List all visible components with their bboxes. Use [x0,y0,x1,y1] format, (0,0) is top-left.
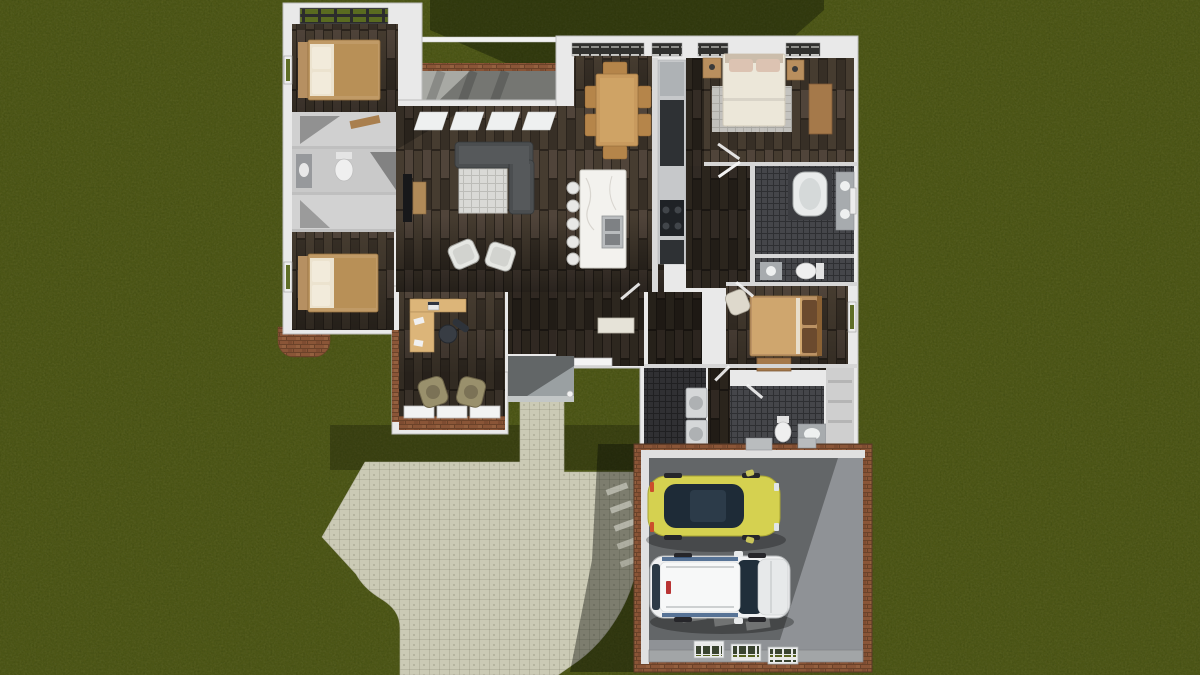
white-suv-hood [758,559,788,615]
left-wall-3 [292,229,398,232]
master-lamp-left [709,64,715,70]
white-suv-roofrail-1 [666,566,734,568]
white-suv-mirror-1 [734,551,743,557]
porch-post [567,391,573,397]
white-suv-mirror-2 [734,618,743,624]
left-bath-toilet-tank [336,152,352,159]
closet-shade [688,166,750,288]
hall2-shade [708,368,730,454]
dining-chair-right-1 [638,86,651,108]
washer-door [689,396,703,410]
garage-door-panes-2 [733,646,759,659]
bedroom1-window-pane [286,59,290,81]
bedroom2-window-pane [286,265,290,289]
bed1-pillow-2 [312,72,331,94]
master-pillow-right [756,59,780,72]
white-suv-wheel-4 [748,617,766,622]
garage-wall-left [641,450,649,664]
master-sink-1 [840,181,850,191]
dining-chair-right-2 [638,114,651,136]
garage-wall-top [641,450,865,458]
bed3-pillow-1 [802,300,817,325]
master-bed-foldline [723,98,785,101]
left-wall-1 [292,146,398,149]
bed1-pillow-1 [312,47,331,69]
stove-burner-2 [675,207,682,214]
den-armchair-2-seat [464,385,478,399]
wc-toilet-tank [816,263,824,279]
bed1-headboard [298,42,308,98]
bar-stool-5 [567,253,579,265]
white-suv-window-bottom [662,613,738,617]
living-north-sill-3 [486,112,520,130]
front-door [574,358,612,366]
kitchen-stove [660,200,684,236]
island-sink-basin-1 [605,219,620,231]
left-bath-toilet [335,159,353,181]
courtyard-rail-top [398,37,570,42]
bar-stool-3 [567,218,579,230]
desk-laptop-screen [428,302,439,305]
white-suv-roof [660,562,740,612]
kitchen-wall [652,58,658,310]
wc-wall [755,254,854,258]
bar-stool-4 [567,236,579,248]
left-wall-2 [292,192,398,195]
bay-window-3 [470,406,500,418]
bar-stool-2 [567,200,579,212]
wc-sink [766,266,776,276]
courtyard-brick-edge [404,63,564,71]
floorplan-render [0,0,1200,675]
white-suv-rear-glass [652,564,660,610]
linen-shelf-3 [828,420,852,423]
living-north-sill-2 [450,112,484,130]
yellow-car-headlight-2 [774,523,779,531]
bedroom3-wall-north [726,282,858,286]
porch-step [508,396,574,402]
master-lamp-right [792,66,798,72]
garage-door-panes-1 [696,643,722,656]
sofa-cushions-top [459,146,529,164]
yellow-car-roof [690,490,726,522]
yellow-car-taillight-1 [650,482,654,492]
sofa-cushions-right [513,164,530,210]
stove-burner-3 [663,223,670,230]
bed3-mattress [752,298,802,354]
mudhall-shade [508,292,556,354]
clerestory-window-4 [786,43,820,56]
bath2-toilet [775,422,791,442]
white-suv-taillight [666,581,671,594]
bath-wall-west [750,164,755,288]
linen-shelf-1 [828,380,852,383]
white-suv-wheel-3 [748,553,766,558]
yellow-car-taillight-2 [650,522,654,532]
bed1-blanket [334,44,378,96]
garage-door-panes-3 [770,649,796,662]
entry-bench [598,318,634,333]
island-sink-basin-2 [605,234,620,245]
dryer-door [689,427,703,441]
dining-table-top [600,78,634,142]
white-suv-hood-line [770,561,772,613]
bed2-pillow-1 [312,261,330,282]
yellow-car-wheel-1 [664,473,682,478]
bar-stool-1 [567,182,579,194]
clerestory-window-2 [652,43,682,56]
master-sink-2 [840,209,850,219]
clerestory-window-1 [572,43,644,56]
kitchen-fridge [660,62,684,96]
stove-burner-1 [663,207,670,214]
wc-toilet [796,263,816,279]
master-dresser [809,84,832,134]
utility-box-2 [798,438,816,448]
white-suv-wheel-2 [674,617,692,622]
left-bath-sink [299,163,309,177]
bedroom1-skylight-band [300,8,388,24]
dining-chair-bottom [603,146,627,159]
media-console [413,182,426,214]
bed3-sheetline [796,298,800,354]
bed3-pillow-2 [802,328,817,353]
yellow-car-headlight-1 [774,483,779,491]
living-north-sill-4 [522,112,556,130]
white-suv-roofrail-2 [666,606,734,608]
yellow-car-wheel-2 [664,535,682,540]
scene-svg [0,0,1200,675]
tv-panel [403,174,412,222]
bathtub-basin [799,178,821,210]
stove-burner-4 [675,223,682,230]
bath-window-east [850,188,856,214]
bay-window-2 [437,406,467,418]
white-suv-window-top [662,557,738,561]
area-rug [459,169,507,213]
office-chair [439,325,457,343]
hall3-shade [648,292,702,364]
south-strip-wall [644,364,858,368]
bedroom3-window-pane [850,305,854,329]
master-pillow-left [729,59,753,72]
living-north-sill-1 [414,112,448,130]
den-armchair-1-seat [426,385,440,399]
den-wing-brick-left [392,330,399,422]
bed2-blanket [334,258,376,308]
bed3-headboard [817,296,822,356]
linen-shelf-2 [828,400,852,403]
kitchen-counter-1 [660,100,684,166]
bed2-pillow-2 [312,285,330,306]
master-wall-south [704,162,858,166]
kitchen-counter-2 [660,240,684,264]
bed2-headboard [298,256,308,310]
utility-box-1 [746,438,772,450]
dining-chair-top [603,62,627,75]
